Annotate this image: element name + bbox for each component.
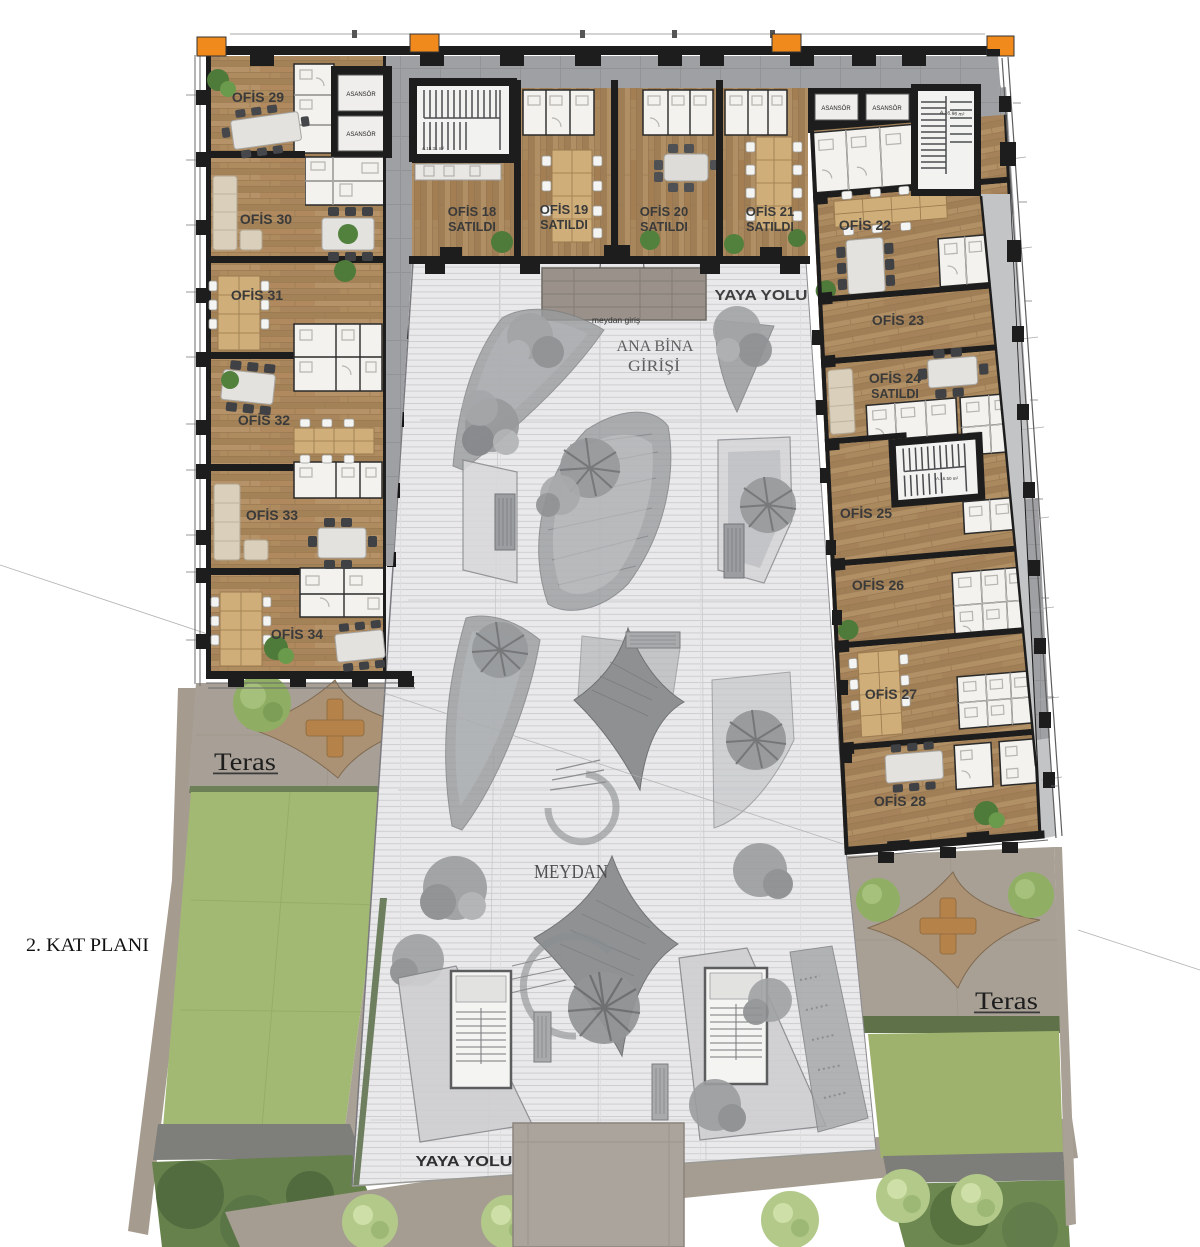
svg-text:GİRİŞİ: GİRİŞİ [628, 357, 680, 375]
svg-text:OFİS 25: OFİS 25 [840, 505, 892, 521]
svg-text:OFİS 23: OFİS 23 [872, 312, 924, 328]
svg-text:OFİS 21: OFİS 21 [746, 204, 794, 219]
svg-text:OFİS 28: OFİS 28 [874, 793, 926, 809]
svg-text:YAYA YOLU: YAYA YOLU [715, 287, 808, 304]
svg-text:OFİS 32: OFİS 32 [238, 412, 290, 428]
svg-text:OFİS 22: OFİS 22 [839, 217, 891, 233]
svg-text:SATILDI: SATILDI [871, 387, 919, 401]
svg-text:YAYA YOLU: YAYA YOLU [416, 1153, 513, 1170]
svg-text:ASANSÖR: ASANSÖR [346, 91, 376, 98]
svg-text:A.18.31 m²: A.18.31 m² [422, 146, 445, 151]
svg-text:OFİS 24: OFİS 24 [869, 370, 921, 386]
svg-text:OFİS 31: OFİS 31 [231, 287, 283, 303]
svg-text:SATILDI: SATILDI [746, 220, 794, 234]
svg-text:SATILDI: SATILDI [540, 218, 588, 232]
svg-text:SATILDI: SATILDI [448, 220, 496, 234]
svg-text:Teras: Teras [214, 749, 276, 776]
svg-text:A.16.50 m²: A.16.50 m² [936, 476, 959, 481]
svg-text:OFİS 30: OFİS 30 [240, 211, 292, 227]
svg-text:OFİS 27: OFİS 27 [865, 686, 917, 702]
svg-text:OFİS 19: OFİS 19 [540, 202, 588, 217]
svg-text:OFİS 26: OFİS 26 [852, 577, 904, 593]
svg-text:ASANSÖR: ASANSÖR [821, 105, 851, 112]
svg-text:ASANSÖR: ASANSÖR [346, 131, 376, 138]
svg-text:OFİS 18: OFİS 18 [448, 204, 496, 219]
svg-text:OFİS 20: OFİS 20 [640, 204, 688, 219]
svg-text:OFİS 29: OFİS 29 [232, 89, 284, 105]
svg-text:meydan giriş: meydan giriş [592, 315, 640, 325]
svg-text:ANA BİNA: ANA BİNA [617, 337, 694, 355]
svg-text:2. KAT PLANI: 2. KAT PLANI [26, 935, 149, 956]
svg-text:SATILDI: SATILDI [640, 220, 688, 234]
svg-text:OFİS 34: OFİS 34 [271, 626, 323, 642]
svg-text:OFİS 33: OFİS 33 [246, 507, 298, 523]
svg-text:Teras: Teras [975, 988, 1038, 1015]
svg-text:MEYDAN: MEYDAN [534, 861, 608, 883]
svg-text:ASANSÖR: ASANSÖR [872, 105, 902, 112]
